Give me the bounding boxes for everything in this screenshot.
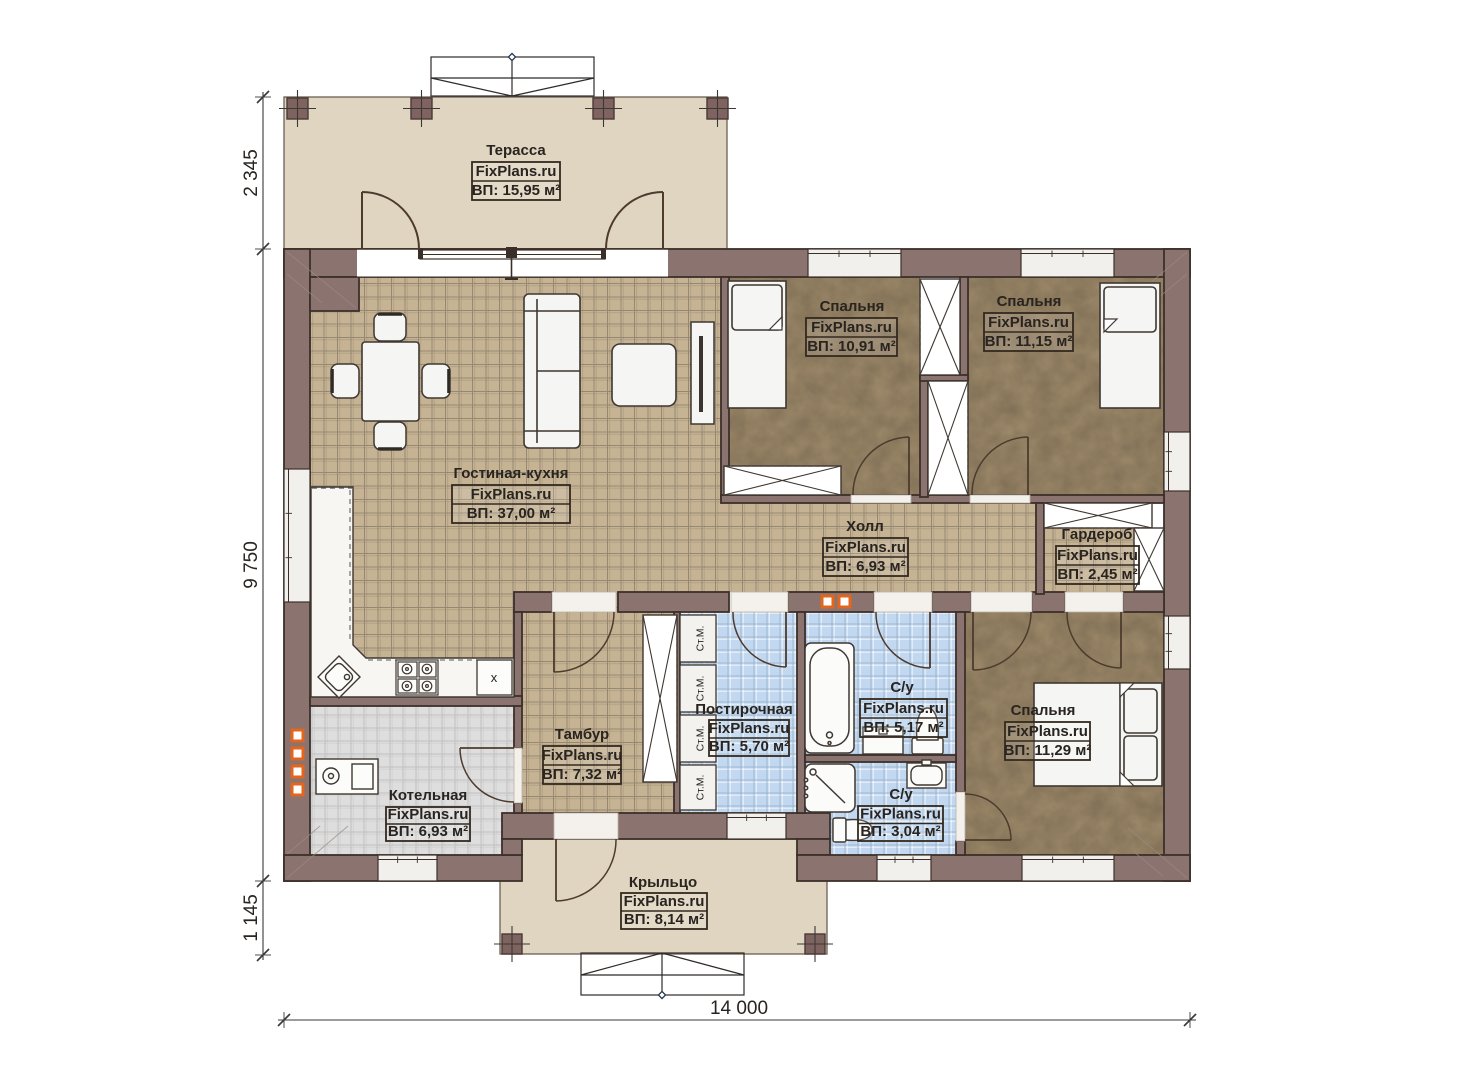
svg-text:FixPlans.ru: FixPlans.ru bbox=[542, 747, 623, 764]
svg-text:ВП: 3,04 м²: ВП: 3,04 м² bbox=[860, 823, 940, 840]
svg-text:Ст.М.: Ст.М. bbox=[695, 726, 707, 752]
svg-text:FixPlans.ru: FixPlans.ru bbox=[709, 720, 790, 737]
svg-text:С/у: С/у bbox=[890, 679, 914, 696]
svg-text:FixPlans.ru: FixPlans.ru bbox=[860, 806, 941, 823]
svg-text:14 000: 14 000 bbox=[710, 998, 768, 1019]
svg-text:ВП: 7,32 м²: ВП: 7,32 м² bbox=[542, 766, 622, 783]
svg-text:ВП: 8,14 м²: ВП: 8,14 м² bbox=[624, 911, 704, 928]
svg-text:9 750: 9 750 bbox=[241, 541, 262, 589]
svg-text:Холл: Холл bbox=[846, 518, 884, 535]
svg-text:ВП: 11,29 м²: ВП: 11,29 м² bbox=[1004, 742, 1092, 759]
svg-text:FixPlans.ru: FixPlans.ru bbox=[863, 700, 944, 717]
svg-text:Гардероб: Гардероб bbox=[1062, 526, 1133, 543]
svg-text:ВП: 2,45 м²: ВП: 2,45 м² bbox=[1057, 566, 1137, 583]
svg-text:ВП: 37,00 м²: ВП: 37,00 м² bbox=[467, 505, 556, 522]
svg-text:С/у: С/у bbox=[889, 786, 913, 803]
svg-text:FixPlans.ru: FixPlans.ru bbox=[1057, 547, 1138, 564]
svg-text:FixPlans.ru: FixPlans.ru bbox=[624, 893, 705, 910]
svg-text:Крыльцо: Крыльцо bbox=[629, 874, 697, 891]
svg-text:Ст.М.: Ст.М. bbox=[695, 775, 707, 801]
svg-text:ВП: 11,15 м²: ВП: 11,15 м² bbox=[985, 333, 1073, 350]
svg-text:FixPlans.ru: FixPlans.ru bbox=[471, 486, 552, 503]
svg-text:Постирочная: Постирочная bbox=[695, 701, 792, 718]
svg-text:FixPlans.ru: FixPlans.ru bbox=[811, 319, 892, 336]
svg-text:FixPlans.ru: FixPlans.ru bbox=[388, 806, 469, 823]
svg-text:2 345: 2 345 bbox=[241, 149, 262, 197]
svg-text:ВП: 6,93 м²: ВП: 6,93 м² bbox=[825, 558, 905, 575]
svg-text:Спальня: Спальня bbox=[820, 298, 885, 315]
svg-text:ВП: 5,70 м²: ВП: 5,70 м² bbox=[709, 738, 789, 755]
svg-text:Спальня: Спальня bbox=[1011, 702, 1076, 719]
svg-text:FixPlans.ru: FixPlans.ru bbox=[476, 163, 557, 180]
svg-text:ВП: 15,95 м²: ВП: 15,95 м² bbox=[472, 182, 561, 199]
svg-text:FixPlans.ru: FixPlans.ru bbox=[825, 539, 906, 556]
svg-text:Ст.М.: Ст.М. bbox=[695, 676, 707, 702]
svg-text:Спальня: Спальня bbox=[997, 293, 1062, 310]
svg-text:x: x bbox=[491, 670, 498, 685]
svg-text:FixPlans.ru: FixPlans.ru bbox=[1007, 723, 1088, 740]
svg-text:Тамбур: Тамбур bbox=[555, 726, 609, 743]
svg-text:ВП: 10,91 м²: ВП: 10,91 м² bbox=[807, 338, 896, 355]
svg-text:ВП: 6,93 м²: ВП: 6,93 м² bbox=[388, 823, 468, 840]
svg-text:Гостиная-кухня: Гостиная-кухня bbox=[454, 465, 569, 482]
svg-text:Ст.М.: Ст.М. bbox=[695, 626, 707, 652]
svg-text:ВП: 5,17 м²: ВП: 5,17 м² bbox=[863, 719, 943, 736]
svg-text:1 145: 1 145 bbox=[241, 894, 262, 942]
svg-text:FixPlans.ru: FixPlans.ru bbox=[988, 314, 1069, 331]
svg-text:Терасса: Терасса bbox=[486, 142, 546, 159]
svg-text:Котельная: Котельная bbox=[389, 787, 468, 804]
